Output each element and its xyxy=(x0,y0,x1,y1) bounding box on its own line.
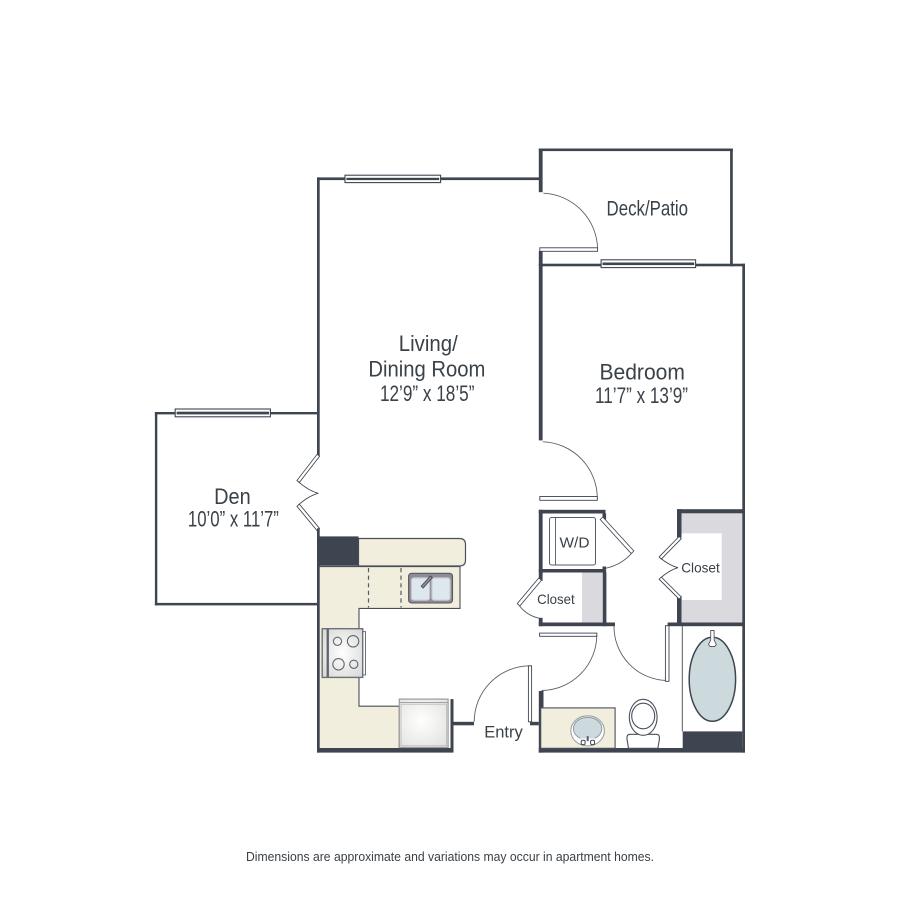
svg-text:Bedroom: Bedroom xyxy=(599,360,685,385)
svg-text:11’7” x 13’9”: 11’7” x 13’9” xyxy=(595,383,688,408)
svg-text:Dimensions are approximate and: Dimensions are approximate and variation… xyxy=(246,850,654,864)
svg-text:10’0” x 11’7”: 10’0” x 11’7” xyxy=(188,506,279,531)
svg-text:Closet: Closet xyxy=(537,591,575,607)
svg-text:Living/: Living/ xyxy=(399,331,459,356)
svg-text:Dining Room: Dining Room xyxy=(368,356,485,381)
svg-text:Deck/Patio: Deck/Patio xyxy=(607,197,689,220)
svg-text:12’9” x 18’5”: 12’9” x 18’5” xyxy=(380,381,475,406)
svg-text:Entry: Entry xyxy=(484,723,523,742)
svg-text:Den: Den xyxy=(214,484,251,509)
svg-text:Closet: Closet xyxy=(681,559,720,575)
svg-text:W/D: W/D xyxy=(560,535,590,552)
